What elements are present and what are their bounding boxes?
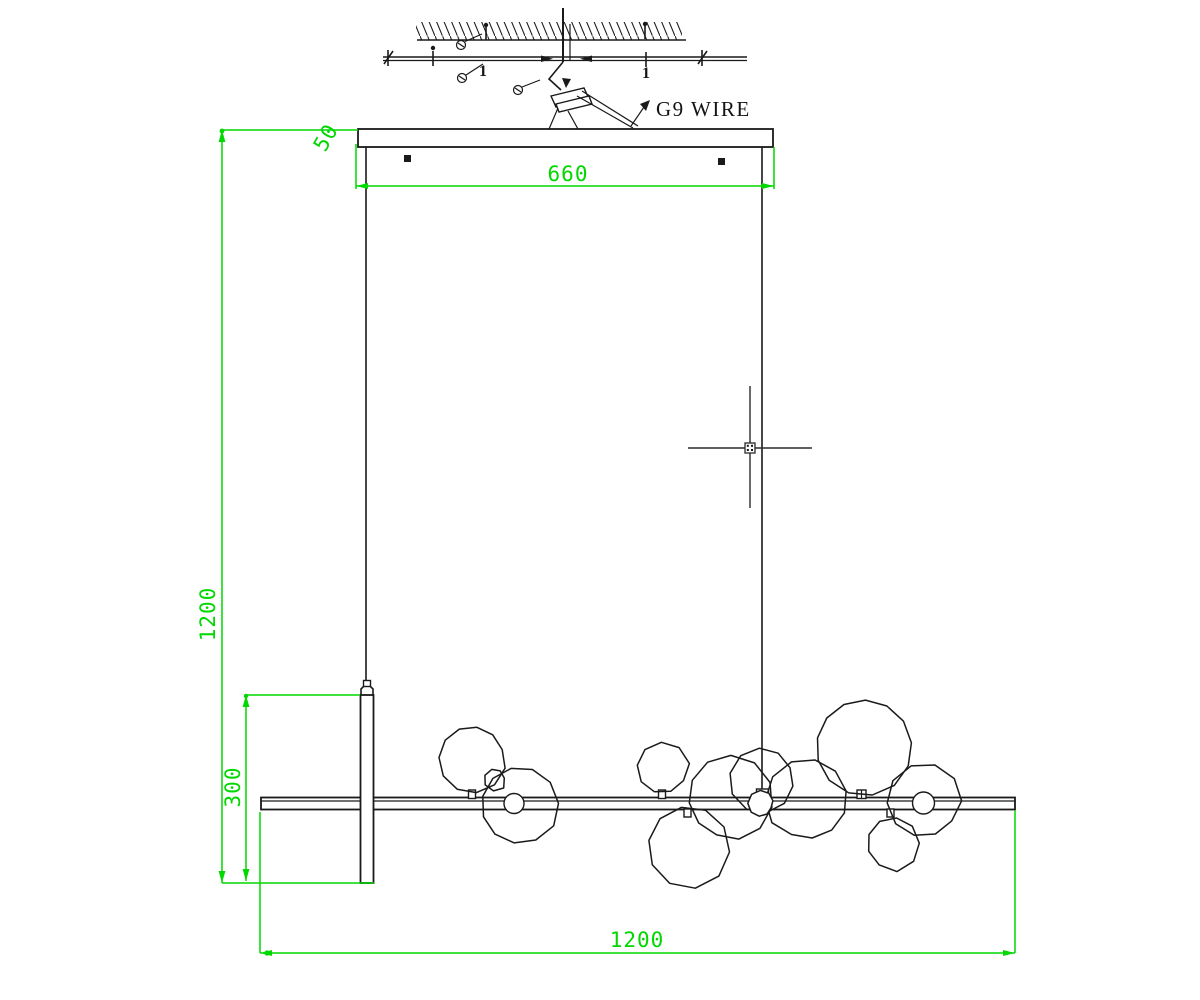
dimension-rod-height: 300 bbox=[221, 694, 360, 881]
screw-callout-icons bbox=[457, 34, 541, 95]
cord-grip bbox=[549, 88, 638, 129]
glass-bubble-shape bbox=[869, 818, 920, 872]
glass-bubble-shape bbox=[637, 742, 689, 791]
dimension-canopy-thickness: 50 bbox=[309, 120, 343, 156]
wire-label: G9 WIRE bbox=[656, 97, 751, 121]
glass-bubble-shape bbox=[818, 700, 912, 795]
glass-bubble-shape bbox=[439, 727, 505, 792]
wire-callout: G9 WIRE bbox=[631, 97, 751, 126]
socket-circle-left bbox=[504, 794, 524, 814]
dim-drop-height-text: 1200 bbox=[196, 587, 220, 642]
cad-crosshair-cursor bbox=[688, 386, 812, 508]
pickbox bbox=[745, 443, 755, 453]
dim-canopy-width-text: 660 bbox=[548, 162, 589, 186]
glass-bubble-shape bbox=[649, 807, 730, 888]
plate-end-tick-right bbox=[698, 50, 707, 66]
vertical-rod bbox=[361, 681, 374, 884]
dim-canopy-thickness-text: 50 bbox=[309, 120, 343, 156]
plate-mark-right: 1 bbox=[642, 65, 650, 82]
dim-fixture-length-text: 1200 bbox=[610, 928, 665, 952]
dim-rod-height-text: 300 bbox=[221, 767, 245, 808]
plate-mark-left: 1 bbox=[479, 63, 487, 80]
main-wire bbox=[549, 8, 571, 90]
socket-circle-right bbox=[913, 792, 935, 814]
dimension-canopy-width: 660 bbox=[356, 144, 774, 189]
canopy-screw-left bbox=[404, 155, 411, 162]
plate-end-tick-left bbox=[384, 50, 393, 66]
mounting-plate bbox=[383, 46, 747, 67]
pendant-light-technical-drawing: 1 1 G9 WIRE bbox=[0, 0, 1200, 1000]
canopy-screw-right bbox=[718, 158, 725, 165]
cad-canvas: 1 1 G9 WIRE bbox=[0, 0, 1200, 1000]
